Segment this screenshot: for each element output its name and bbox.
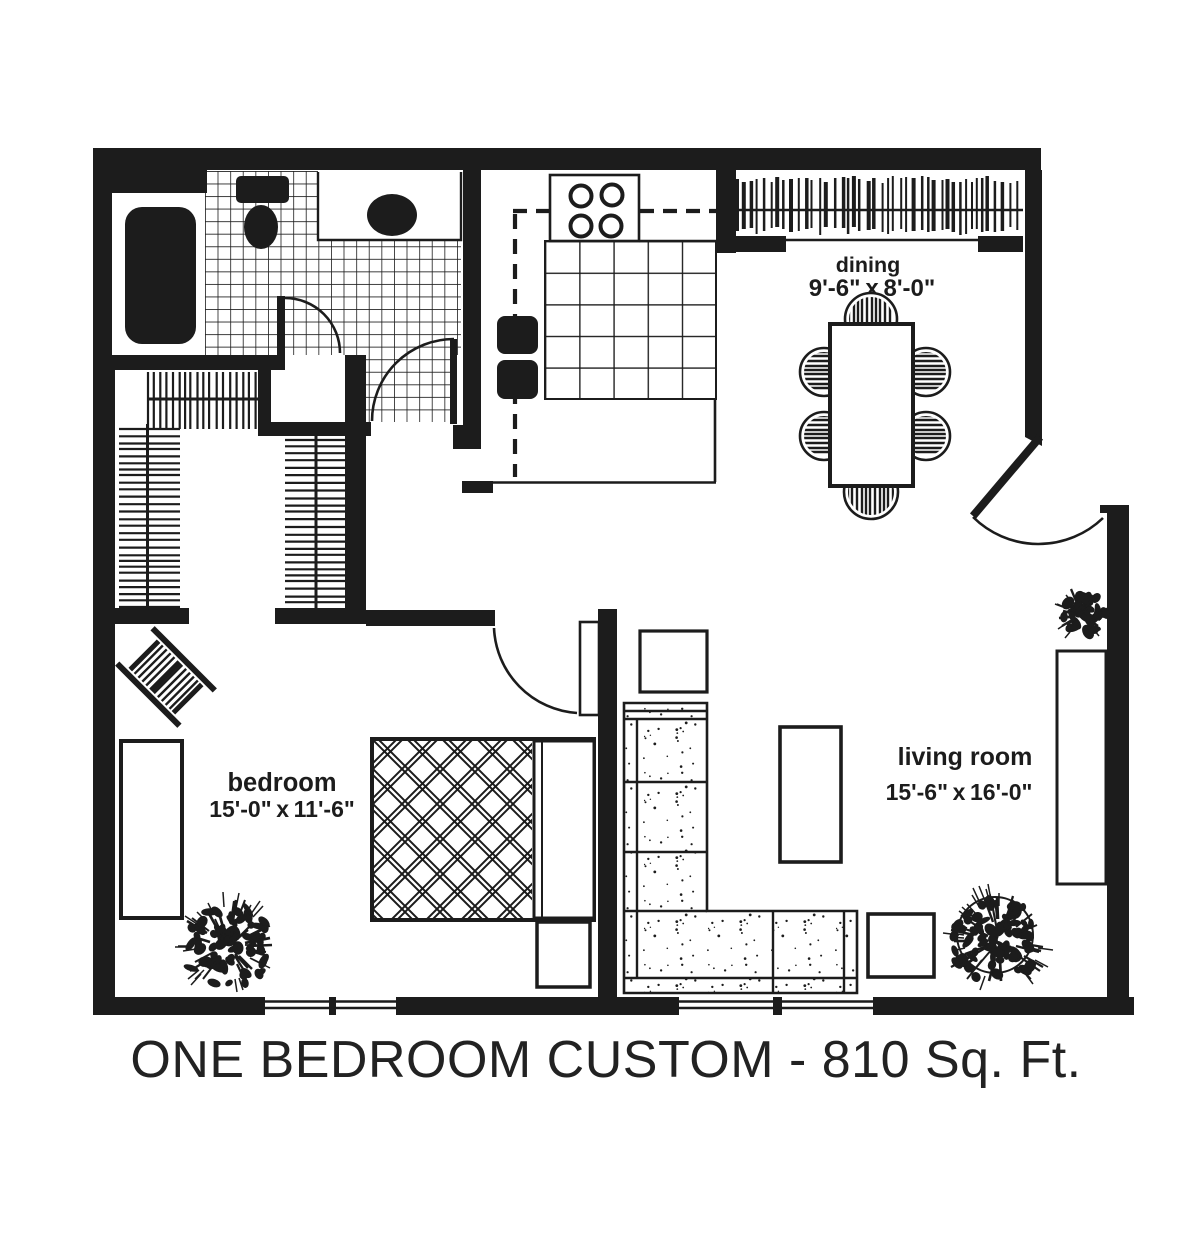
svg-text:bedroom: bedroom xyxy=(227,769,336,797)
svg-text:15'-0" x 11'-6": 15'-0" x 11'-6" xyxy=(209,796,355,822)
svg-text:15'-6" x 16'-0": 15'-6" x 16'-0" xyxy=(886,779,1033,805)
svg-text:dining: dining xyxy=(836,253,900,277)
svg-text:ONE BEDROOM CUSTOM - 810 Sq. F: ONE BEDROOM CUSTOM - 810 Sq. Ft. xyxy=(130,1031,1081,1089)
svg-text:living room: living room xyxy=(898,743,1033,771)
